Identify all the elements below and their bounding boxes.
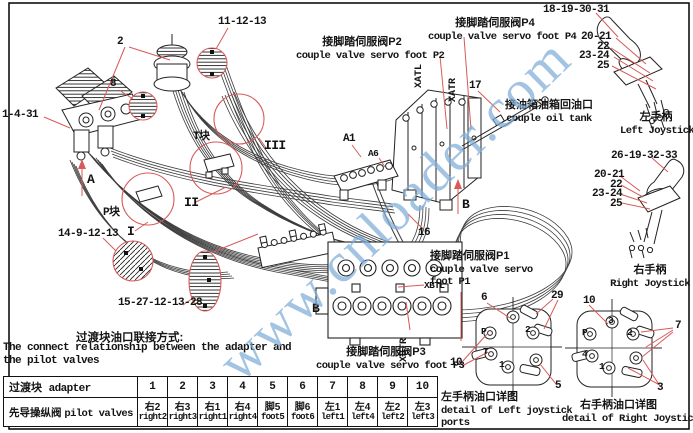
ldetail-label-5: 5 <box>555 381 561 392</box>
pilot-valve-cell: 左1left1 <box>318 398 348 427</box>
technical-diagram-page: www.cnloader.com 11-12-13 2 8 1-4-31 T块 … <box>0 0 693 433</box>
right-joystick-drawing <box>629 159 683 258</box>
label-t-block: T块 <box>193 132 209 143</box>
label-2: 2 <box>117 37 123 48</box>
pilot-valve-cell: 左2left2 <box>378 398 408 427</box>
label-17: 17 <box>469 81 481 92</box>
label-14-9-12-13: 14-9-12-13 <box>58 229 118 240</box>
label-26-19-32-33: 26-19-32-33 <box>611 151 677 162</box>
caption-left-detail-en1: detail of Left joystick <box>441 405 572 417</box>
adapter-row-header: 过渡块 adapter <box>4 377 138 398</box>
rdetail-label-7: 7 <box>675 321 681 332</box>
caption-right-detail: 右手柄油口详图 detail of Right Joystick po <box>580 396 693 425</box>
left-port-detail <box>462 297 562 396</box>
caption-left-detail-zh: 左手柄油口详图 <box>441 388 572 404</box>
adapter-port-cell: 1 <box>138 377 168 398</box>
caption-servo-p4: 接脚踏伺服阀P4 couple valve servo foot P4 <box>428 14 562 43</box>
pilot-valve-cell: 脚5foot5 <box>258 398 288 427</box>
label-11-12-13: 11-12-13 <box>218 17 266 28</box>
pilot-valve-cell: 右4right4 <box>228 398 258 427</box>
caption-right-joystick-zh: 右手柄 <box>610 261 690 277</box>
caption-servo-p1-en2: foot P1 <box>430 276 533 288</box>
a1-manifold <box>334 160 398 200</box>
ldetail-port-1: 1 <box>499 360 504 370</box>
pilot-valve-cell: 右1right1 <box>198 398 228 427</box>
label-xatr: XATR <box>449 78 459 102</box>
label-iii: III <box>264 139 286 152</box>
pilot-valve-cell: 左3left3 <box>408 398 438 427</box>
pilot-valve-cell: 右3right3 <box>168 398 198 427</box>
label-p-block: P块 <box>103 208 119 219</box>
caption-right-joystick-en: Right Joystick <box>610 278 690 290</box>
adapter-port-cell: 3 <box>198 377 228 398</box>
rdetail-label-3: 3 <box>657 383 663 394</box>
caption-left-detail: 左手柄油口详图 detail of Left joystick ports <box>441 388 572 429</box>
label-a6: A6 <box>368 149 378 159</box>
adapter-row: 过渡块 adapter 12345678910 <box>4 377 438 398</box>
caption-left-joystick-en: Left Joystick <box>620 125 692 137</box>
adapter-port-cell: 8 <box>348 377 378 398</box>
adapter-port-cell: 9 <box>378 377 408 398</box>
caption-right-joystick: 右手柄 Right Joystick <box>610 261 690 290</box>
adapter-port-cell: 5 <box>258 377 288 398</box>
rdetail-port-3: 3 <box>608 316 613 326</box>
adapter-port-cell: 4 <box>228 377 258 398</box>
rdetail-port-1: 1 <box>599 362 604 372</box>
pilot-valves-row-header: 先导操纵阀 pilot valves <box>4 398 138 427</box>
rdetail-label-10: 10 <box>583 296 595 307</box>
caption-right-detail-en: detail of Right Joystick po <box>562 413 693 425</box>
label-xatl: XATL <box>415 64 425 88</box>
adapter-pilot-table: 过渡块 adapter 12345678910 先导操纵阀 pilot valv… <box>3 376 438 427</box>
caption-servo-p3-zh: 接脚踏伺服阀P3 <box>316 343 456 359</box>
main-control-valve <box>392 90 481 210</box>
pedal-stem-valve <box>154 34 190 91</box>
rdetail-port-2: 2 <box>627 328 632 338</box>
caption-oil-tank-en: couple oil tank <box>504 113 594 125</box>
caption-oil-tank-zh: 接油箱油箱回油口 <box>504 96 594 112</box>
caption-right-detail-zh: 右手柄油口详图 <box>580 396 693 412</box>
caption-servo-p2-en: couple valve servo foot P2 <box>296 50 428 62</box>
right-port-detail <box>565 299 662 397</box>
label-a: A <box>87 173 94 186</box>
caption-servo-p4-zh: 接脚踏伺服阀P4 <box>428 14 562 30</box>
caption-servo-p2: 接脚踏伺服阀P2 couple valve servo foot P2 <box>296 33 428 62</box>
label-i: I <box>127 225 134 238</box>
pilot-valves-row: 先导操纵阀 pilot valves 右2right2右3right3右1rig… <box>4 398 438 427</box>
rdetail-port-p: P <box>582 328 587 338</box>
fitting-manifold <box>256 222 337 267</box>
adapter-row-header-zh: 过渡块 <box>9 383 42 395</box>
caption-servo-p1-en1: couple valve servo <box>430 264 533 276</box>
label-1-4-31: 1-4-31 <box>2 110 38 121</box>
pilot-valves-row-header-zh: 先导操纵阀 <box>9 407 62 419</box>
caption-left-detail-en2: ports <box>441 417 572 429</box>
rdetail-port-4: 4 <box>582 350 587 360</box>
adapter-row-header-en: adapter <box>49 383 91 395</box>
label-b-block: B <box>312 302 319 315</box>
caption-oil-tank: 接油箱油箱回油口 couple oil tank <box>504 96 594 125</box>
caption-left-joystick-zh: 左手柄 <box>620 108 692 124</box>
caption-left-joystick: 左手柄 Left Joystick <box>620 108 692 137</box>
adapter-port-cell: 2 <box>168 377 198 398</box>
caption-servo-p2-zh: 接脚踏伺服阀P2 <box>296 33 428 49</box>
adapter-port-cell: 6 <box>288 377 318 398</box>
caption-servo-p3-en: couple valve servo foot P3 <box>316 360 456 372</box>
caption-servo-p4-en: couple valve servo foot P4 <box>428 31 562 43</box>
label-ljoy-25: 25 <box>597 61 609 72</box>
label-rjoy-25: 25 <box>610 199 622 210</box>
note-line2: the pilot valves <box>3 355 99 367</box>
pilot-valves-row-header-en: pilot valves <box>64 408 132 420</box>
ldetail-port-2: 2 <box>525 325 530 335</box>
label-16: 16 <box>418 228 430 239</box>
adapter-port-cell: 10 <box>408 377 438 398</box>
label-ii: II <box>184 196 198 209</box>
note-line1: The connect relationship between the ada… <box>3 342 291 354</box>
pilot-valve-cell: 脚6foot6 <box>288 398 318 427</box>
label-a1: A1 <box>343 134 355 145</box>
caption-servo-p1-zh: 接脚踏伺服阀P1 <box>430 247 533 263</box>
caption-servo-p1: 接脚踏伺服阀P1 couple valve servo foot P1 <box>430 247 533 288</box>
ldetail-label-10: 10 <box>450 358 462 369</box>
ldetail-label-6: 6 <box>481 293 487 304</box>
label-b-arrow: B <box>462 198 469 211</box>
pilot-valve-cell: 左4left4 <box>348 398 378 427</box>
ldetail-port-t: T <box>483 347 488 357</box>
label-15-27-12-13-28: 15-27-12-13-28 <box>118 298 202 309</box>
label-8: 8 <box>110 79 116 90</box>
caption-servo-p3: 接脚踏伺服阀P3 couple valve servo foot P3 <box>316 343 456 372</box>
adapter-port-cell: 7 <box>318 377 348 398</box>
ldetail-label-29: 29 <box>551 291 563 302</box>
pilot-valve-cell: 右2right2 <box>138 398 168 427</box>
ldetail-port-p: P <box>481 327 486 337</box>
